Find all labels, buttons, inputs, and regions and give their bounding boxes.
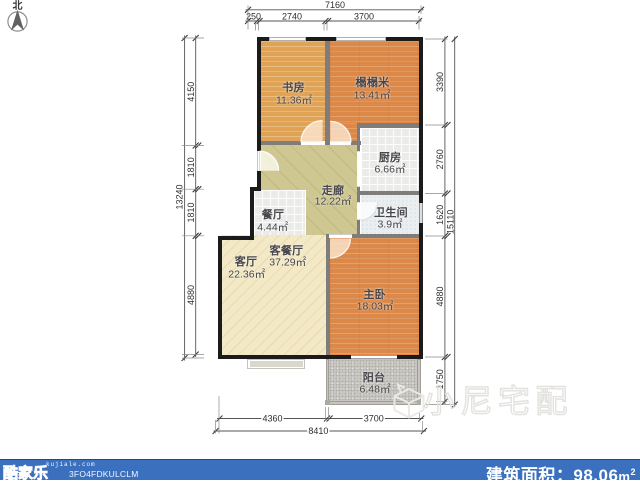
svg-text:4150: 4150 [186, 82, 196, 102]
svg-text:4880: 4880 [186, 285, 196, 305]
svg-text:7160: 7160 [325, 0, 345, 10]
svg-text:8410: 8410 [308, 426, 328, 436]
svg-text:1810: 1810 [186, 202, 196, 222]
svg-text:15110: 15110 [445, 210, 455, 234]
svg-text:3390: 3390 [435, 72, 445, 92]
svg-text:1750: 1750 [435, 369, 445, 389]
svg-text:1620: 1620 [435, 205, 445, 225]
svg-text:13240: 13240 [175, 184, 185, 209]
svg-text:3700: 3700 [354, 12, 374, 22]
svg-text:4880: 4880 [435, 286, 445, 306]
svg-text:250: 250 [246, 12, 261, 22]
svg-text:3700: 3700 [364, 414, 384, 424]
svg-text:4360: 4360 [262, 414, 282, 424]
svg-text:北: 北 [13, 0, 23, 12]
svg-text:2740: 2740 [282, 12, 302, 22]
svg-text:小尼宅配: 小尼宅配 [423, 383, 573, 419]
svg-text:2760: 2760 [435, 149, 445, 169]
svg-text:1810: 1810 [186, 157, 196, 177]
